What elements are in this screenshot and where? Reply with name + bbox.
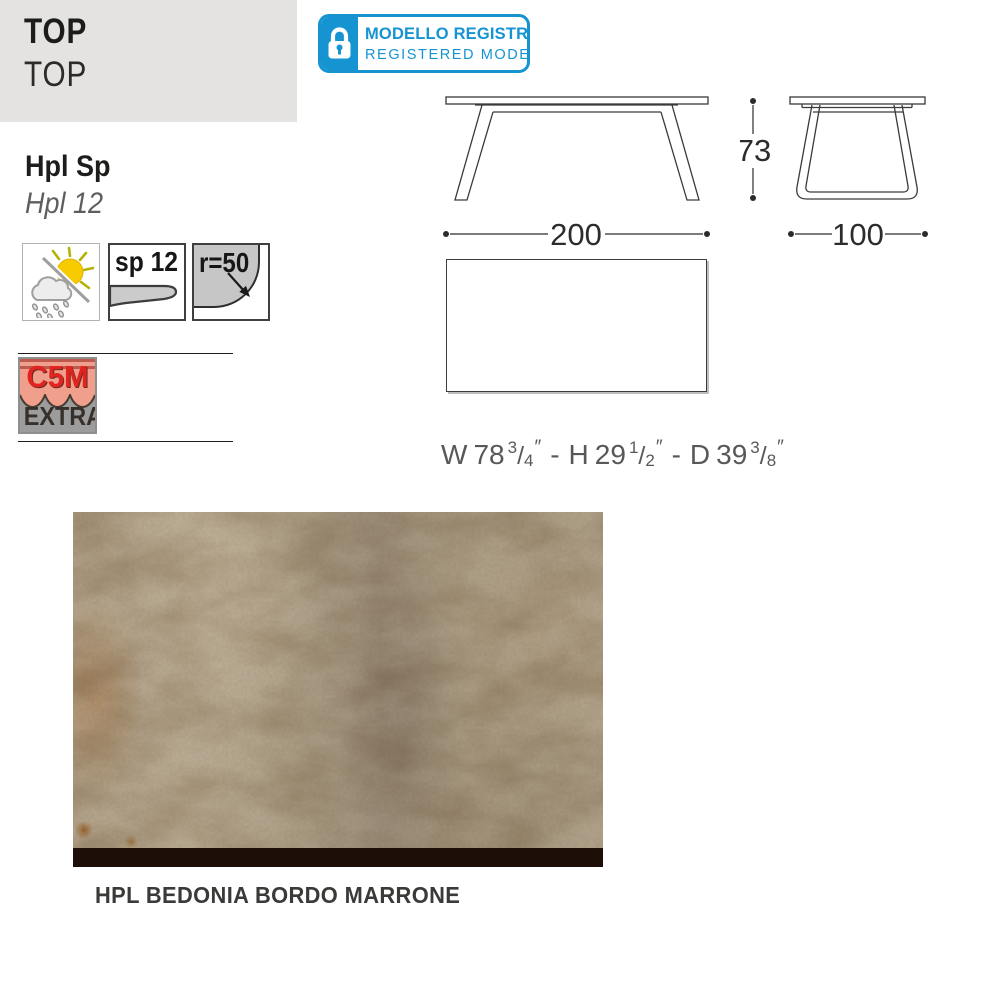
table-top-view-outline (446, 259, 707, 392)
corner-radius-icon: r=50 (192, 243, 270, 321)
radius-arrow-glyph (194, 245, 268, 319)
side-height-dimension: 73 (740, 133, 771, 168)
imperial-dimensions: W783/4″-H291/2″-D393/8″ (441, 437, 784, 471)
header-box: TOP TOP (0, 0, 297, 122)
catalog-page: TOP TOP MODELLO REGISTRATO REGISTERED MO… (0, 0, 1000, 1000)
height-label: H (569, 439, 589, 470)
badge-line-english: REGISTERED MODEL (365, 46, 530, 63)
extra-label: EXTRA (24, 401, 92, 432)
material-name-bold: Hpl Sp (25, 150, 111, 184)
top-thickness-icon: sp 12 (108, 243, 186, 321)
outdoor-weather-icon (22, 243, 100, 321)
edge-profile-glyph (110, 245, 184, 319)
material-swatch (73, 512, 603, 867)
c5m-extra-certification-logo: C5M EXTRA (18, 357, 97, 434)
badge-text: MODELLO REGISTRATO REGISTERED MODEL (358, 17, 530, 70)
registered-model-badge: MODELLO REGISTRATO REGISTERED MODEL (318, 14, 530, 73)
page-subtitle: TOP (24, 55, 87, 95)
table-front-view-drawing: 200 (435, 88, 725, 250)
divider-line-top (18, 353, 233, 354)
divider-line-bottom (18, 441, 233, 442)
badge-line-italian: MODELLO REGISTRATO (365, 24, 530, 44)
side-depth-dimension: 100 (832, 217, 884, 250)
swatch-caption: HPL BEDONIA BORDO MARRONE (95, 882, 460, 909)
width-label: W (441, 439, 467, 470)
stone-texture-noise (73, 512, 603, 848)
c5m-label: C5M (22, 359, 93, 395)
depth-label: D (690, 439, 710, 470)
lock-icon-glyph (321, 18, 358, 70)
table-side-view-drawing: 73 100 (740, 88, 940, 250)
brown-edge-strip (73, 848, 603, 867)
page-title: TOP (24, 12, 87, 52)
lock-icon (321, 17, 358, 70)
sun-cloud-rain-glyph (23, 244, 97, 318)
material-name-italic: Hpl 12 (25, 187, 103, 221)
front-width-dimension: 200 (550, 217, 602, 250)
